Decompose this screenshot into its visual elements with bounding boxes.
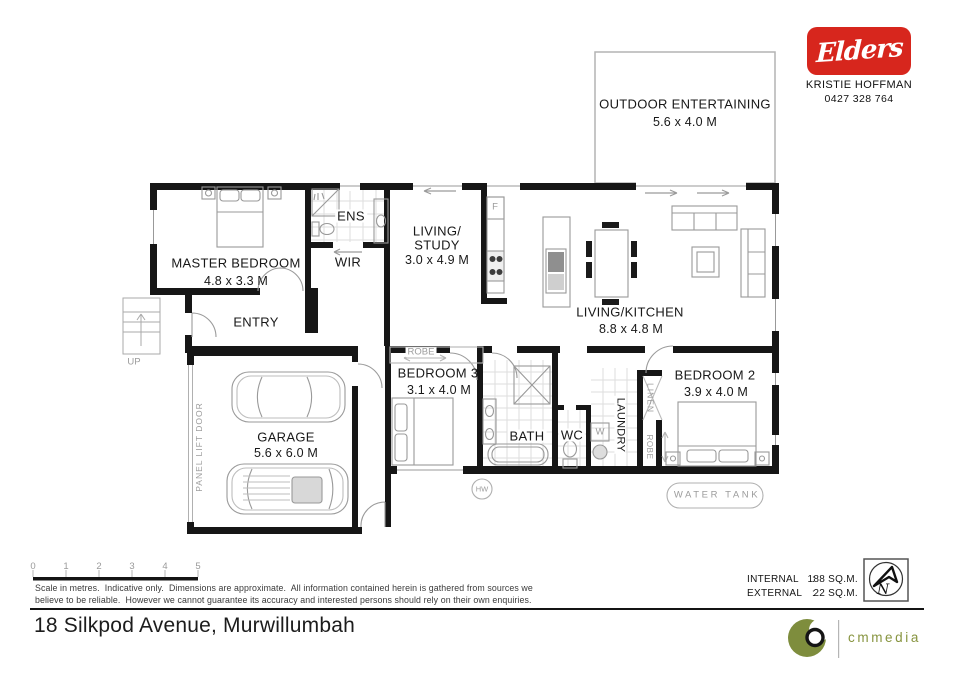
room-dims-master-bedroom: 4.8 x 3.3 M xyxy=(204,275,268,288)
room-label-bedroom3: BEDROOM 3 xyxy=(398,367,479,380)
room-dims-living-kitchen: 8.8 x 4.8 M xyxy=(599,323,663,336)
room-label-bedroom2: BEDROOM 2 xyxy=(675,369,756,382)
floorplan-page: OUTDOOR ENTERTAINING 5.6 x 4.0 M MASTER … xyxy=(0,0,954,675)
room-label-entry: ENTRY xyxy=(233,316,278,329)
compass-icon: N xyxy=(863,558,910,604)
label-washer: W xyxy=(596,427,605,437)
disclaimer-line-2: believe to be reliable. However we canno… xyxy=(35,595,532,605)
room-label-living-study-1: LIVING/ xyxy=(413,225,461,238)
scale-bar xyxy=(33,570,198,581)
disclaimer-line-1: Scale in metres. Indicative only. Dimens… xyxy=(35,583,533,593)
compass-north-letter: N xyxy=(876,582,890,598)
room-dims-outdoor: 5.6 x 4.0 M xyxy=(653,116,717,129)
room-dims-bedroom3: 3.1 x 4.0 M xyxy=(407,384,471,397)
scale-tick-1: 1 xyxy=(63,561,68,572)
room-label-bath: BATH xyxy=(508,430,547,443)
cmmedia-logo-icon xyxy=(786,616,846,662)
scale-tick-4: 4 xyxy=(162,561,167,572)
scale-tick-0: 0 xyxy=(30,561,35,572)
external-area-value: 22 SQ.M. xyxy=(798,588,858,599)
room-dims-garage: 5.6 x 6.0 M xyxy=(254,447,318,460)
room-label-laundry: LAUNDRY xyxy=(615,396,626,454)
panel-lift-door-lines xyxy=(189,365,193,522)
label-hot-water: HW xyxy=(476,485,489,493)
scale-tick-5: 5 xyxy=(195,561,200,572)
elders-logo-text: Elders xyxy=(815,33,903,69)
elders-logo: Elders xyxy=(807,27,911,75)
internal-area-label: INTERNAL xyxy=(747,574,799,585)
label-up: UP xyxy=(127,357,140,367)
external-area-label: EXTERNAL xyxy=(747,588,802,599)
walls xyxy=(150,183,779,534)
room-label-wc: WC xyxy=(559,429,585,442)
room-label-living-kitchen: LIVING/KITCHEN xyxy=(576,306,684,319)
room-label-master-bedroom: MASTER BEDROOM xyxy=(171,257,300,270)
label-fridge: F xyxy=(492,202,498,212)
property-address: 18 Silkpod Avenue, Murwillumbah xyxy=(34,614,355,638)
footer-divider xyxy=(30,608,924,610)
label-water-tank: WATER TANK xyxy=(674,490,760,500)
porch-steps xyxy=(123,298,160,354)
agent-name: KRISTIE HOFFMAN xyxy=(779,79,939,91)
room-dims-living-study: 3.0 x 4.9 M xyxy=(405,254,469,267)
internal-area-value: 188 SQ.M. xyxy=(798,574,858,585)
room-dims-bedroom2: 3.9 x 4.0 M xyxy=(684,386,748,399)
cmmedia-logo-text: cmmedia xyxy=(848,630,921,645)
room-label-living-study-2: STUDY xyxy=(414,239,460,252)
agent-phone: 0427 328 764 xyxy=(779,93,939,105)
room-label-ensuite: ENS xyxy=(335,210,367,223)
room-label-garage: GARAGE xyxy=(257,431,314,444)
room-label-wir: WIR xyxy=(335,256,361,269)
room-label-outdoor: OUTDOOR ENTERTAINING xyxy=(599,98,771,111)
slider-arrows xyxy=(334,188,729,255)
label-panel-lift-door: PANEL LIFT DOOR xyxy=(195,402,204,491)
scale-tick-3: 3 xyxy=(129,561,134,572)
room-label-linen: LINEN xyxy=(646,383,655,413)
scale-tick-2: 2 xyxy=(96,561,101,572)
label-robe-bedroom2: ROBE xyxy=(645,434,653,459)
label-robe-bedroom3: ROBE xyxy=(406,347,437,357)
